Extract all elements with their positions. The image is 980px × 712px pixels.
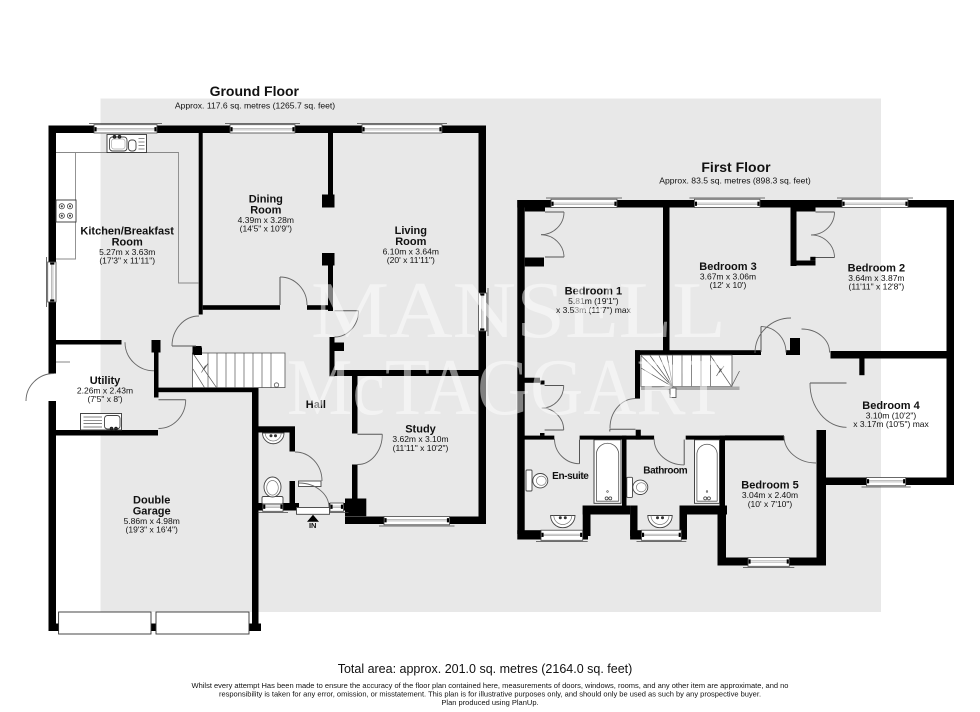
svg-text:(14'5" x 10'9"): (14'5" x 10'9") — [240, 224, 292, 234]
svg-text:Ground Floor: Ground Floor — [210, 83, 300, 99]
svg-text:McTAGGART: McTAGGART — [287, 344, 726, 432]
svg-text:(17'3" x 11'11"): (17'3" x 11'11") — [99, 256, 155, 266]
svg-text:(20' x 11'11"): (20' x 11'11") — [387, 255, 435, 265]
svg-text:First Floor: First Floor — [701, 159, 771, 175]
svg-text:Total area: approx. 201.0 sq.: Total area: approx. 201.0 sq. metres (21… — [338, 662, 633, 676]
svg-text:(7'5" x 8'): (7'5" x 8') — [87, 394, 122, 404]
svg-text:IN: IN — [309, 521, 317, 530]
svg-text:(11'11" x 12'8"): (11'11" x 12'8") — [849, 282, 905, 292]
svg-text:(19'3" x 16'4"): (19'3" x 16'4") — [126, 525, 178, 535]
svg-text:x 3.17m (10'5") max: x 3.17m (10'5") max — [853, 419, 929, 429]
svg-text:(11'11" x 10'2"): (11'11" x 10'2") — [393, 443, 449, 453]
svg-text:Approx. 117.6 sq. metres (1265: Approx. 117.6 sq. metres (1265.7 sq. fee… — [175, 100, 335, 110]
svg-text:MANSELL: MANSELL — [311, 267, 726, 355]
svg-text:En-suite: En-suite — [552, 471, 589, 482]
svg-text:Bathroom: Bathroom — [643, 466, 688, 477]
svg-text:Approx. 83.5 sq. metres (898.3: Approx. 83.5 sq. metres (898.3 sq. feet) — [659, 176, 811, 186]
svg-text:(10' x 7'10"): (10' x 7'10") — [748, 499, 793, 509]
svg-text:Plan produced using PlanUp.: Plan produced using PlanUp. — [441, 698, 538, 707]
